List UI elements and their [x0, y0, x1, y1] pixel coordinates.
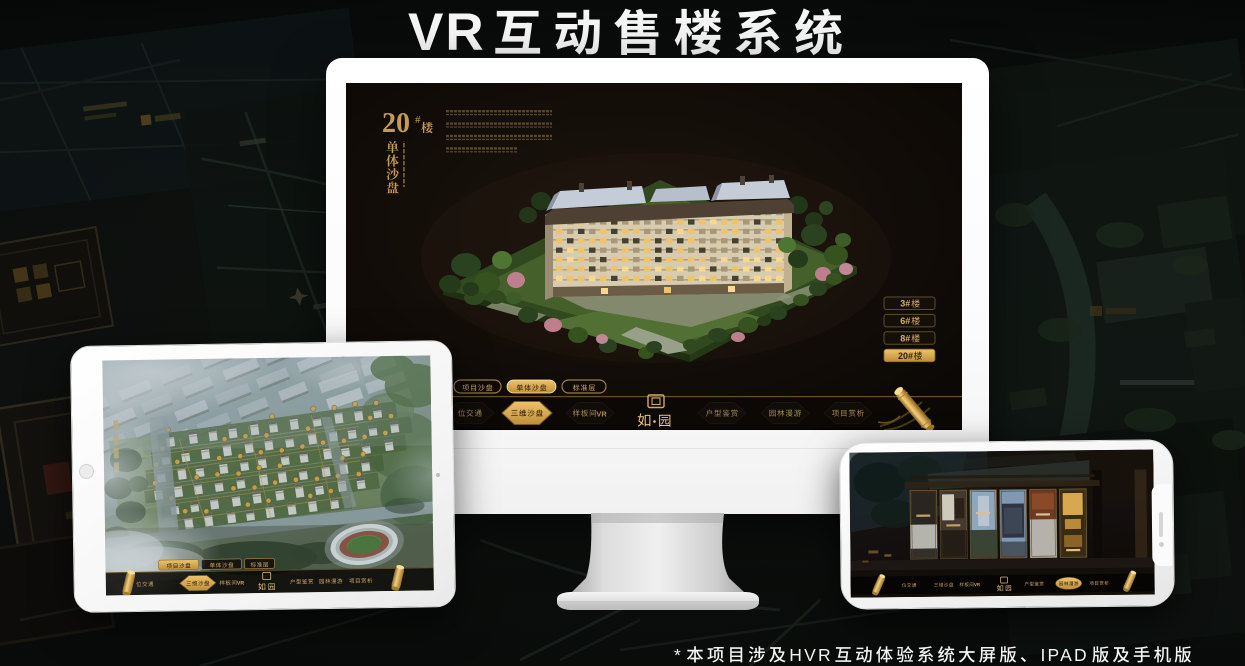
svg-text:VR: VR — [596, 409, 607, 418]
svg-text:20: 20 — [382, 108, 410, 139]
svg-text:*: * — [674, 645, 683, 665]
svg-text:VR: VR — [408, 3, 486, 62]
svg-text:IPAD: IPAD — [1041, 645, 1089, 665]
svg-text:#: # — [415, 114, 421, 126]
svg-text:VR: VR — [237, 581, 245, 587]
svg-text:20#: 20# — [898, 351, 913, 361]
svg-text:VR: VR — [974, 582, 981, 587]
svg-text:3#: 3# — [900, 299, 910, 309]
svg-text:6#: 6# — [900, 316, 910, 326]
svg-text:HVR: HVR — [789, 645, 833, 665]
svg-text:8#: 8# — [900, 333, 910, 343]
